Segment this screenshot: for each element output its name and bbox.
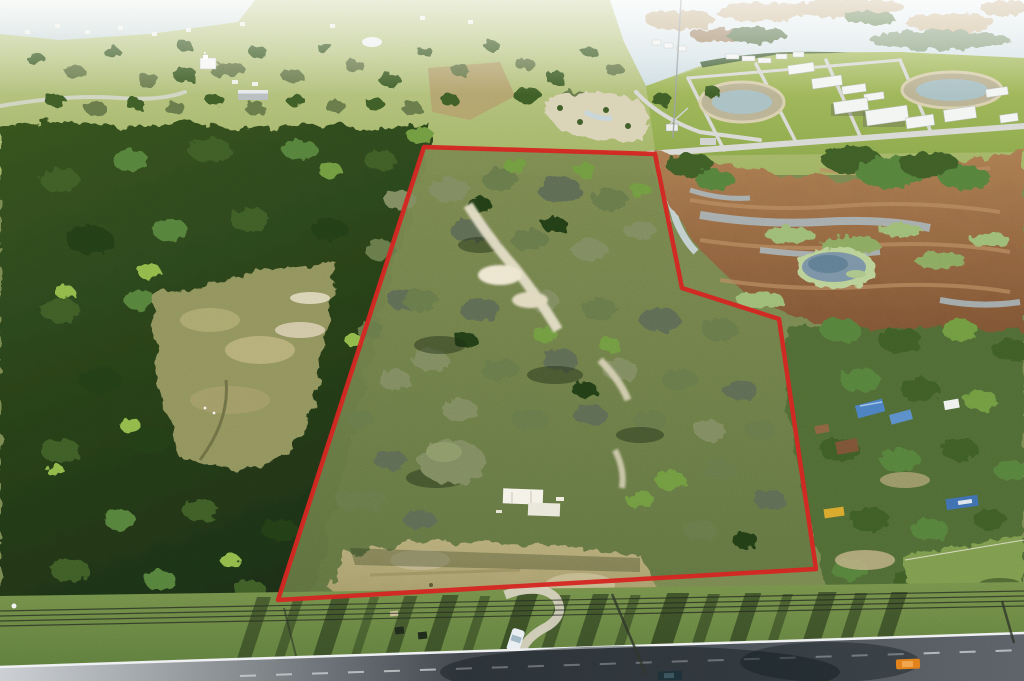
film-grain: [0, 0, 1024, 681]
aerial-photo: [0, 0, 1024, 681]
scene-root: [0, 0, 1024, 681]
